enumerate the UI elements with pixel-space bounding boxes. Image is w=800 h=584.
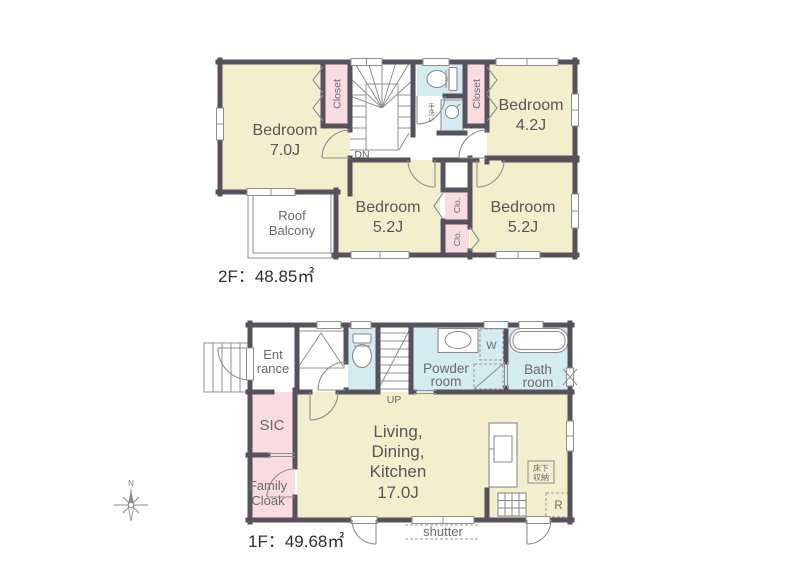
porch-steps xyxy=(204,343,248,392)
clo-lower-label: Clo. xyxy=(452,231,462,246)
stove-icon xyxy=(498,493,526,516)
floor-plan-drawing: Bedroom 7.0J Bedroom 4.2J Bedroom 5.2J B… xyxy=(0,0,800,584)
bedroom1-name: Bedroom xyxy=(253,122,318,139)
bedroom2-name: Bedroom xyxy=(499,97,564,114)
hand-wash-label: 手洗い xyxy=(427,102,435,123)
bedroom3-size: 5.2J xyxy=(373,219,403,236)
floor-storage-label-1: 床下 xyxy=(533,463,549,473)
bath-label-2: room xyxy=(523,375,554,390)
bathtub-icon xyxy=(510,329,568,353)
floor2-title: 2F：48.85㎡ xyxy=(218,267,314,286)
washer-label: W xyxy=(486,340,497,352)
stairs-1f xyxy=(378,327,411,390)
closet-left-label: Closet xyxy=(332,79,344,109)
room-ldk xyxy=(297,392,572,520)
shutter-label: shutter xyxy=(423,524,463,539)
ldk-label-4: 17.0J xyxy=(377,483,419,502)
floor-plan-page: Bedroom 7.0J Bedroom 4.2J Bedroom 5.2J B… xyxy=(0,0,800,584)
bedroom2-size: 4.2J xyxy=(516,117,546,134)
cloak-label-2: Cloak xyxy=(251,493,285,508)
entrance-cabinet xyxy=(299,331,344,368)
cloak-label-1: Family xyxy=(249,478,288,493)
bedroom1-size: 7.0J xyxy=(270,142,300,159)
bedroom4-size: 5.2J xyxy=(508,219,538,236)
floor-1f: Ent rance SIC Family Cloak Powder room B… xyxy=(204,322,577,552)
powder-label-2: room xyxy=(431,374,462,389)
bedroom4-name: Bedroom xyxy=(491,199,556,216)
compass-north-label: N xyxy=(128,479,134,488)
fridge-label: R xyxy=(554,500,562,512)
balcony-label-2: Balcony xyxy=(269,223,316,238)
sic-label: SIC xyxy=(259,417,284,434)
floor-storage-label-2: 収納 xyxy=(533,472,549,482)
compass-hub xyxy=(128,502,133,507)
stairs-dn-label: DN xyxy=(354,149,369,161)
ldk-label-1: Living, xyxy=(373,422,422,441)
entrance-label-2: rance xyxy=(257,361,290,376)
stairs-up-label: UP xyxy=(387,394,402,406)
ldk-label-3: Kitchen xyxy=(370,462,427,481)
balcony-label-1: Roof xyxy=(278,208,306,223)
closet-right-label: Closet xyxy=(471,79,483,109)
ldk-label-2: Dining, xyxy=(372,442,425,461)
floor-2f: Bedroom 7.0J Bedroom 4.2J Bedroom 5.2J B… xyxy=(217,59,579,287)
clo-upper-label: Clo. xyxy=(452,198,462,213)
bedroom3-name: Bedroom xyxy=(356,199,421,216)
kitchen-island xyxy=(489,423,517,487)
toilet-icon-1f xyxy=(353,334,372,368)
floor1-title: 1F：49.68㎡ xyxy=(248,532,344,551)
compass-rose: N xyxy=(114,479,148,521)
powder-sink-icon xyxy=(438,329,478,353)
stairs-2f xyxy=(350,62,413,150)
entrance-label-1: Ent xyxy=(263,347,283,362)
